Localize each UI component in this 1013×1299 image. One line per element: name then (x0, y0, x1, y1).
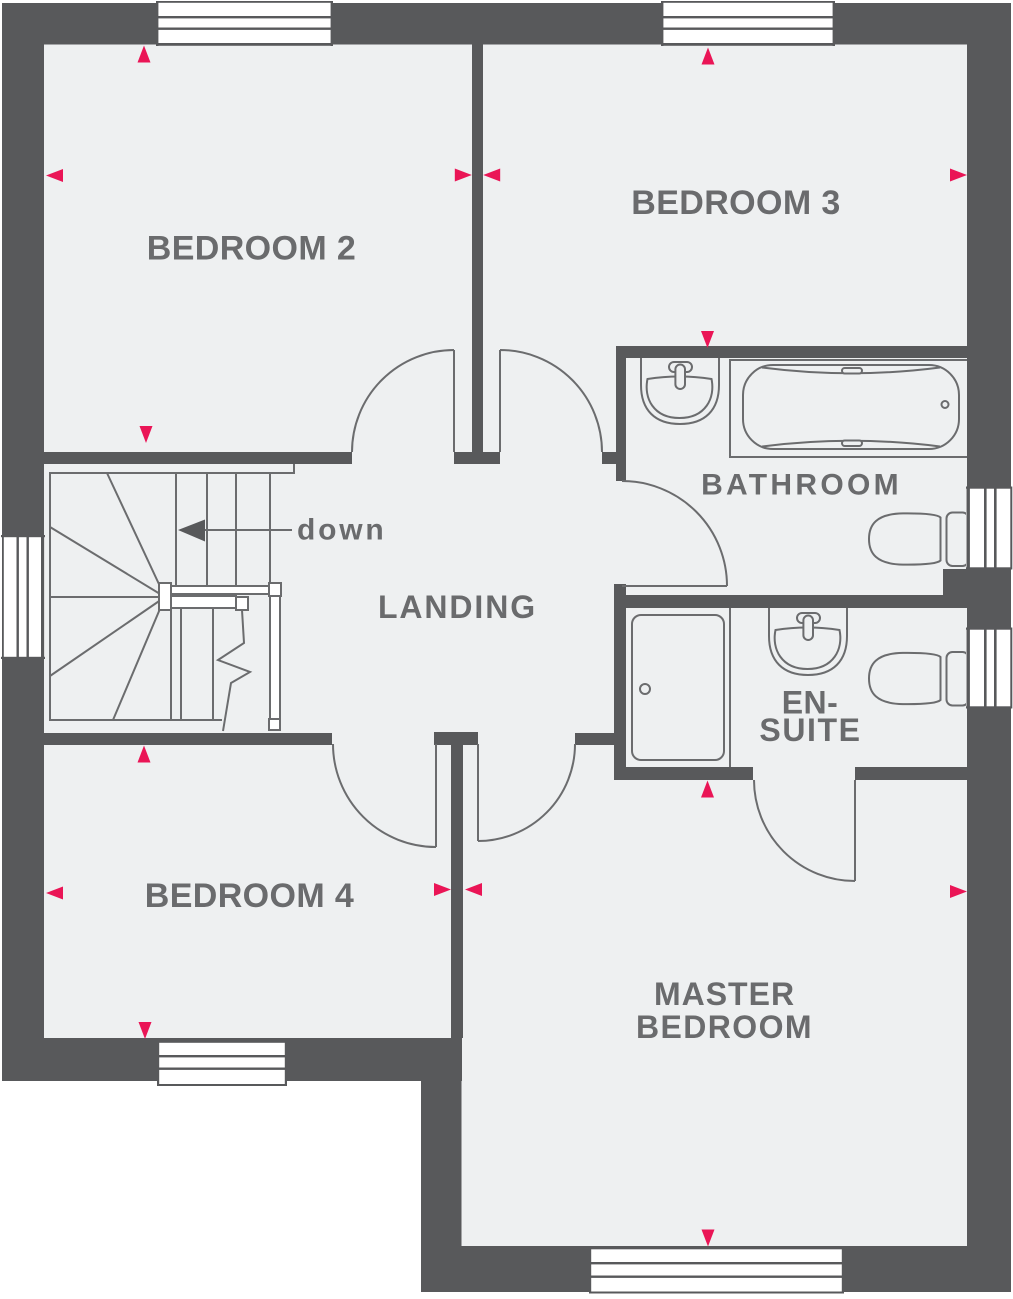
svg-text:LANDING: LANDING (378, 589, 537, 625)
svg-text:MASTER: MASTER (654, 976, 795, 1012)
svg-text:BEDROOM 4: BEDROOM 4 (145, 877, 355, 915)
svg-text:BEDROOM: BEDROOM (636, 1009, 813, 1045)
svg-text:BEDROOM 3: BEDROOM 3 (631, 184, 841, 222)
svg-text:BATHROOM: BATHROOM (701, 469, 902, 502)
svg-text:BEDROOM 2: BEDROOM 2 (147, 230, 357, 268)
svg-text:down: down (297, 514, 387, 547)
svg-text:SUITE: SUITE (759, 712, 861, 748)
